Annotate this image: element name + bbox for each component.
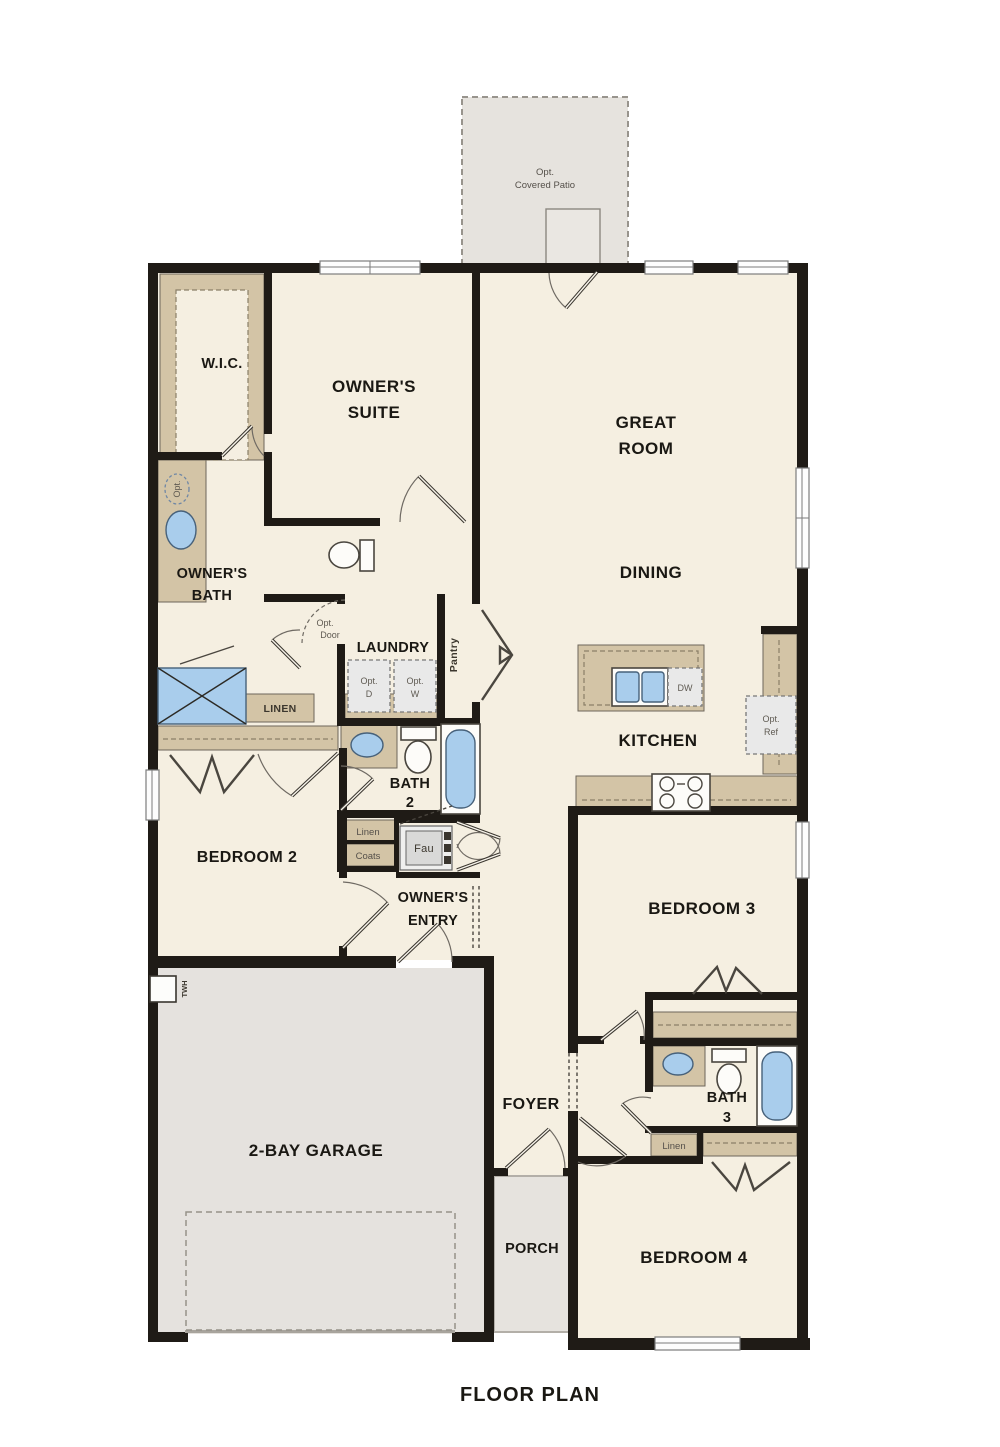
label-owners-suite-2: SUITE [348, 403, 401, 422]
patio-label-2: Covered Patio [515, 180, 575, 191]
floor-plan-page: Opt. Covered Patio [0, 0, 1000, 1447]
label-fau: Fau [414, 843, 434, 855]
label-owners-bath-1: OWNER'S [177, 566, 248, 582]
label-opt-d-2: D [366, 689, 373, 699]
opt-washer-box [394, 660, 436, 712]
label-dining: DINING [620, 563, 683, 582]
label-wic: W.I.C. [201, 356, 242, 372]
label-opt-ref-2: Ref [764, 727, 779, 737]
opt-dryer-box [348, 660, 390, 712]
bath3-tub [762, 1052, 792, 1120]
label-bedroom3: BEDROOM 3 [648, 899, 755, 918]
label-linen-bath3: Linen [662, 1141, 685, 1152]
label-kitchen: KITCHEN [618, 731, 697, 750]
owners-sink [166, 511, 196, 549]
bedroom2-closet-shelf [158, 726, 338, 750]
label-linen-small: Linen [356, 827, 379, 838]
owners-toilet-tank [360, 540, 374, 571]
patio-step [546, 209, 600, 265]
label-pantry: Pantry [448, 638, 460, 672]
bath2-tub [446, 730, 475, 808]
label-opt-door-1: Opt. [316, 618, 333, 628]
label-bath2-2: 2 [406, 795, 414, 811]
label-bath3-1: BATH [707, 1090, 747, 1106]
label-bedroom2: BEDROOM 2 [197, 849, 298, 866]
bath2-sink [351, 733, 383, 757]
label-bath3-2: 3 [723, 1110, 731, 1126]
label-owners-bath-2: BATH [192, 588, 232, 604]
kitchen-sink-right [642, 672, 664, 702]
label-bath2-1: BATH [390, 776, 430, 792]
label-foyer: FOYER [502, 1096, 559, 1113]
label-garage: 2-BAY GARAGE [249, 1141, 383, 1160]
floor-plan-svg: Opt. Covered Patio [0, 0, 1000, 1447]
water-heater-label: TWH [180, 980, 189, 997]
label-opt-ref-1: Opt. [762, 714, 779, 724]
label-owners-entry-2: ENTRY [408, 913, 458, 929]
label-linen-hall: LINEN [264, 703, 297, 715]
patio-label-1: Opt. [536, 167, 554, 178]
bath3-toilet-tank [712, 1049, 746, 1062]
wic-floor [176, 290, 248, 460]
label-owners-suite-1: OWNER'S [332, 377, 416, 396]
label-great-room-2: ROOM [619, 439, 674, 458]
label-bedroom4: BEDROOM 4 [640, 1248, 748, 1267]
label-opt-w-2: W [411, 689, 420, 699]
label-opt-door-2: Door [320, 630, 340, 640]
owners-toilet-bowl [329, 542, 359, 568]
label-porch: PORCH [505, 1241, 559, 1257]
bath2-toilet-bowl [405, 741, 431, 773]
label-great-room-1: GREAT [616, 413, 677, 432]
label-opt-d-1: Opt. [360, 676, 377, 686]
kitchen-sink-left [616, 672, 639, 702]
label-laundry: LAUNDRY [357, 640, 429, 656]
opt-fridge-box [746, 696, 796, 754]
page-title: FLOOR PLAN [460, 1384, 600, 1406]
water-heater-box [150, 976, 176, 1002]
label-coats: Coats [356, 851, 381, 862]
bath3-sink [663, 1053, 693, 1075]
covered-patio: Opt. Covered Patio [462, 97, 628, 265]
label-dw: DW [678, 683, 693, 693]
label-owners-entry-1: OWNER'S [398, 890, 469, 906]
label-opt-w-1: Opt. [406, 676, 423, 686]
opt-sink-label: Opt. [172, 480, 182, 497]
bath2-toilet-tank [401, 727, 436, 740]
stove [652, 774, 710, 811]
